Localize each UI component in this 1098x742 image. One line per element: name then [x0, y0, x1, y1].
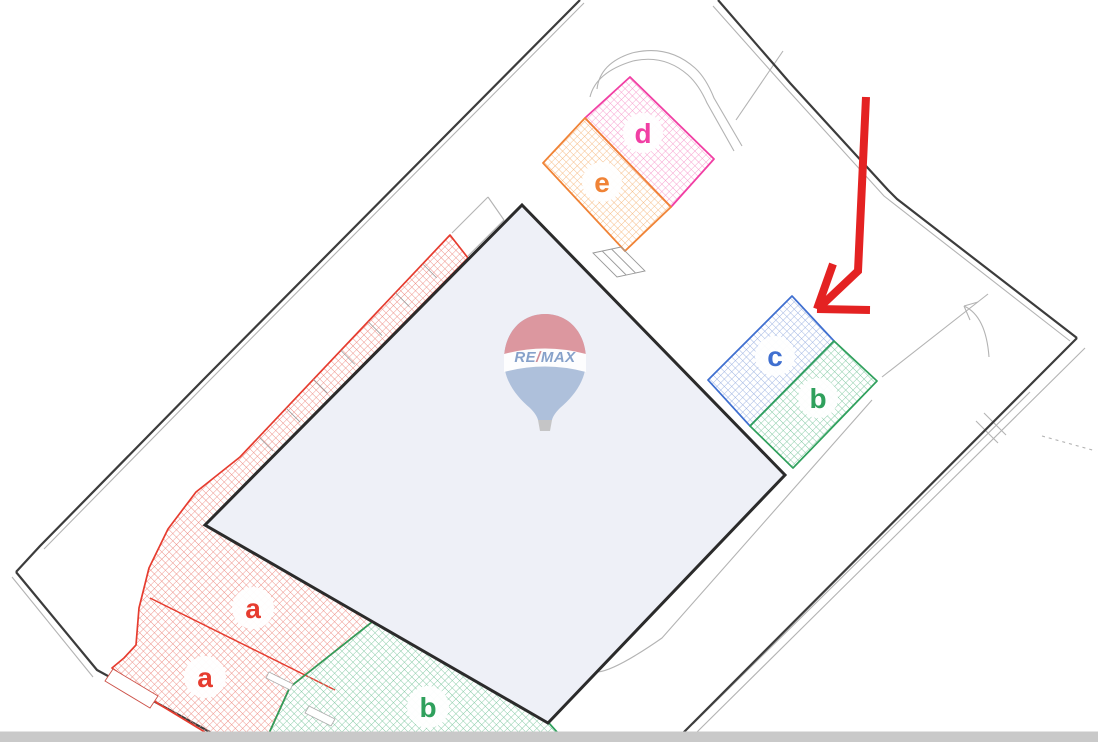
zone-d-label: d — [623, 113, 663, 153]
zone-b-letter: b — [809, 383, 826, 414]
zone-d-letter: d — [634, 118, 651, 149]
zone-b-label-right: b — [798, 378, 838, 418]
zone-a-label-2: a — [184, 656, 226, 698]
arrow-barb-right — [817, 309, 870, 310]
zone-b-letter: b — [419, 692, 436, 723]
zone-a-letter: a — [245, 593, 261, 624]
zone-a-letter: a — [197, 662, 213, 693]
zone-e-letter: e — [594, 167, 610, 198]
site-plan-drawing: RE/MAX a a b b c d e — [0, 0, 1098, 742]
zone-c-letter: c — [767, 341, 783, 372]
site-plan-page: RE/MAX a a b b c d e — [0, 0, 1098, 742]
zone-a-label-1: a — [232, 587, 274, 629]
zone-e-label: e — [582, 162, 622, 202]
remax-wordmark: RE/MAX — [514, 349, 576, 366]
zone-c-label: c — [755, 336, 795, 376]
balloon-basket — [538, 420, 552, 431]
scanner-edge-bar — [0, 732, 1098, 742]
zone-b-label-bottom: b — [407, 686, 449, 728]
